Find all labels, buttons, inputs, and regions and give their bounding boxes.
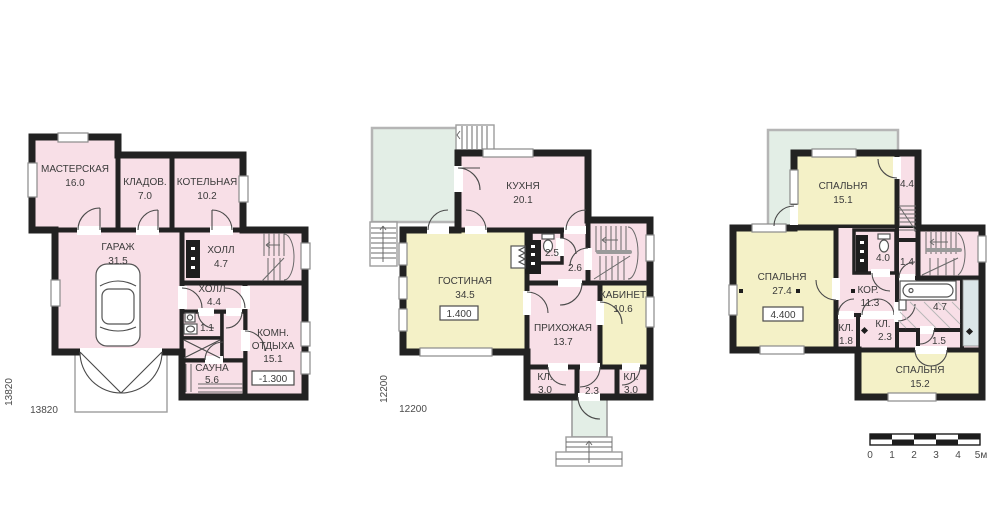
room-label: ГАРАЖ xyxy=(101,242,135,253)
room-label: ОТДЫХА xyxy=(252,341,295,352)
room-area: 15.1 xyxy=(263,354,283,365)
room-area: 3.0 xyxy=(538,385,552,396)
room-label: КОМН. xyxy=(257,328,289,339)
room-area: 4.0 xyxy=(876,253,890,264)
room-label: ГОСТИНАЯ xyxy=(438,276,492,287)
room-area: 1.5 xyxy=(932,336,946,347)
room-area: 2.5 xyxy=(545,248,559,259)
room-area: 1.4 xyxy=(900,257,914,268)
window xyxy=(790,170,798,204)
dimension-vertical: 13820 xyxy=(4,378,15,406)
room-label: СПАЛЬНЯ xyxy=(758,272,807,283)
room-label: ПРИХОЖАЯ xyxy=(534,323,592,334)
floor-plan-second: СПАЛЬНЯ 15.1 4.4 СПАЛЬНЯ 27.4 4.400 4.0 … xyxy=(729,130,986,401)
floor-plans-canvas: МАСТЕРСКАЯ 16.0 КЛАДОВ. 7.0 КОТЕЛЬНАЯ 10… xyxy=(0,0,1000,530)
toilet-icon xyxy=(878,234,890,252)
floor-plan-basement: МАСТЕРСКАЯ 16.0 КЛАДОВ. 7.0 КОТЕЛЬНАЯ 10… xyxy=(4,133,310,416)
scale-tick-0: 0 xyxy=(867,450,873,461)
dimension-vertical: 12200 xyxy=(379,375,390,403)
terrace xyxy=(372,128,458,222)
dimension-horizontal: 13820 xyxy=(30,405,58,416)
room-area: 16.0 xyxy=(65,178,85,189)
window xyxy=(301,352,310,374)
room-area: 7.0 xyxy=(138,191,152,202)
room-label: КЛ. xyxy=(875,319,890,330)
room-label: КОТЕЛЬНАЯ xyxy=(177,177,238,188)
window xyxy=(28,163,37,197)
scale-tick-4: 4 xyxy=(955,450,961,461)
balcony-strip xyxy=(963,280,979,346)
room-area: 4.7 xyxy=(933,302,947,313)
washer-icon xyxy=(185,313,195,322)
room-label: САУНА xyxy=(195,363,229,374)
window xyxy=(812,149,856,157)
window xyxy=(58,133,88,142)
room-label: КАБИНЕТ xyxy=(600,290,646,301)
room-area: 3.0 xyxy=(624,385,638,396)
window xyxy=(51,280,60,306)
sink-icon xyxy=(899,300,906,310)
window xyxy=(420,348,492,356)
room-label: ХОЛЛ xyxy=(207,245,234,256)
room-area: 2.6 xyxy=(568,263,582,274)
room-area: 34.5 xyxy=(455,290,475,301)
car-icon xyxy=(96,264,140,346)
floor-plans-drawing: МАСТЕРСКАЯ 16.0 КЛАДОВ. 7.0 КОТЕЛЬНАЯ 10… xyxy=(0,0,1000,530)
window xyxy=(760,346,804,354)
room-area: 10.2 xyxy=(197,191,217,202)
room-area: 2.3 xyxy=(878,332,892,343)
room-area: 15.1 xyxy=(833,195,853,206)
room-area: 5.6 xyxy=(205,375,219,386)
window xyxy=(399,277,407,299)
scale-bar: 0 1 2 3 4 5м xyxy=(867,434,987,461)
room-label: МАСТЕРСКАЯ xyxy=(41,164,109,175)
window xyxy=(646,297,654,327)
scale-tick-5: 5м xyxy=(975,450,988,461)
window xyxy=(483,149,533,157)
room-area: 11.3 xyxy=(861,298,880,309)
room-label: КЛ. xyxy=(537,372,552,383)
dimension-horizontal: 12200 xyxy=(399,404,427,415)
bathtub-icon xyxy=(900,281,956,300)
window xyxy=(301,243,310,269)
room-label: КЛАДОВ. xyxy=(123,177,166,188)
window xyxy=(729,285,737,315)
entrance-steps-icon xyxy=(556,437,622,466)
room-label: КЛ. xyxy=(838,323,853,334)
level-mark: 4.400 xyxy=(770,310,795,321)
level-mark: 1.400 xyxy=(446,309,471,320)
sink-icon xyxy=(184,324,197,334)
room-area: 31.5 xyxy=(108,256,128,267)
window xyxy=(239,176,248,202)
window xyxy=(399,243,407,265)
room-label: СПАЛЬНЯ xyxy=(896,365,945,376)
shelf-icon xyxy=(856,235,868,272)
window xyxy=(399,309,407,331)
room-area: 10.6 xyxy=(613,304,633,315)
room-area: 4.4 xyxy=(207,297,221,308)
room-area: 15.2 xyxy=(910,379,930,390)
window xyxy=(646,235,654,261)
room-area: 1.8 xyxy=(839,336,853,347)
scale-tick-1: 1 xyxy=(889,450,895,461)
window xyxy=(978,236,986,262)
room-label: ХОЛЛ xyxy=(198,284,225,295)
room-label: КЛ. xyxy=(623,372,638,383)
room-area: 20.1 xyxy=(513,195,533,206)
scale-tick-2: 2 xyxy=(911,450,917,461)
room-label: КОР. xyxy=(857,285,878,296)
window xyxy=(888,393,936,401)
room-label: КУХНЯ xyxy=(506,181,539,192)
window xyxy=(301,322,310,346)
room-area: 4.7 xyxy=(214,259,228,270)
room-area: 4.4 xyxy=(900,179,914,190)
wardrobe-icon xyxy=(186,240,200,278)
room-label: СПАЛЬНЯ xyxy=(819,181,868,192)
scale-tick-3: 3 xyxy=(933,450,939,461)
room-area: 13.7 xyxy=(553,337,573,348)
room-area: 2.3 xyxy=(585,386,599,397)
room-area: 27.4 xyxy=(772,286,792,297)
level-mark: -1.300 xyxy=(259,374,288,385)
window xyxy=(752,224,786,232)
floor-plan-first: КУХНЯ 20.1 ГОСТИНАЯ 34.5 1.400 2.5 2.6 П… xyxy=(370,125,654,466)
room-area: 1.1 xyxy=(200,323,214,334)
